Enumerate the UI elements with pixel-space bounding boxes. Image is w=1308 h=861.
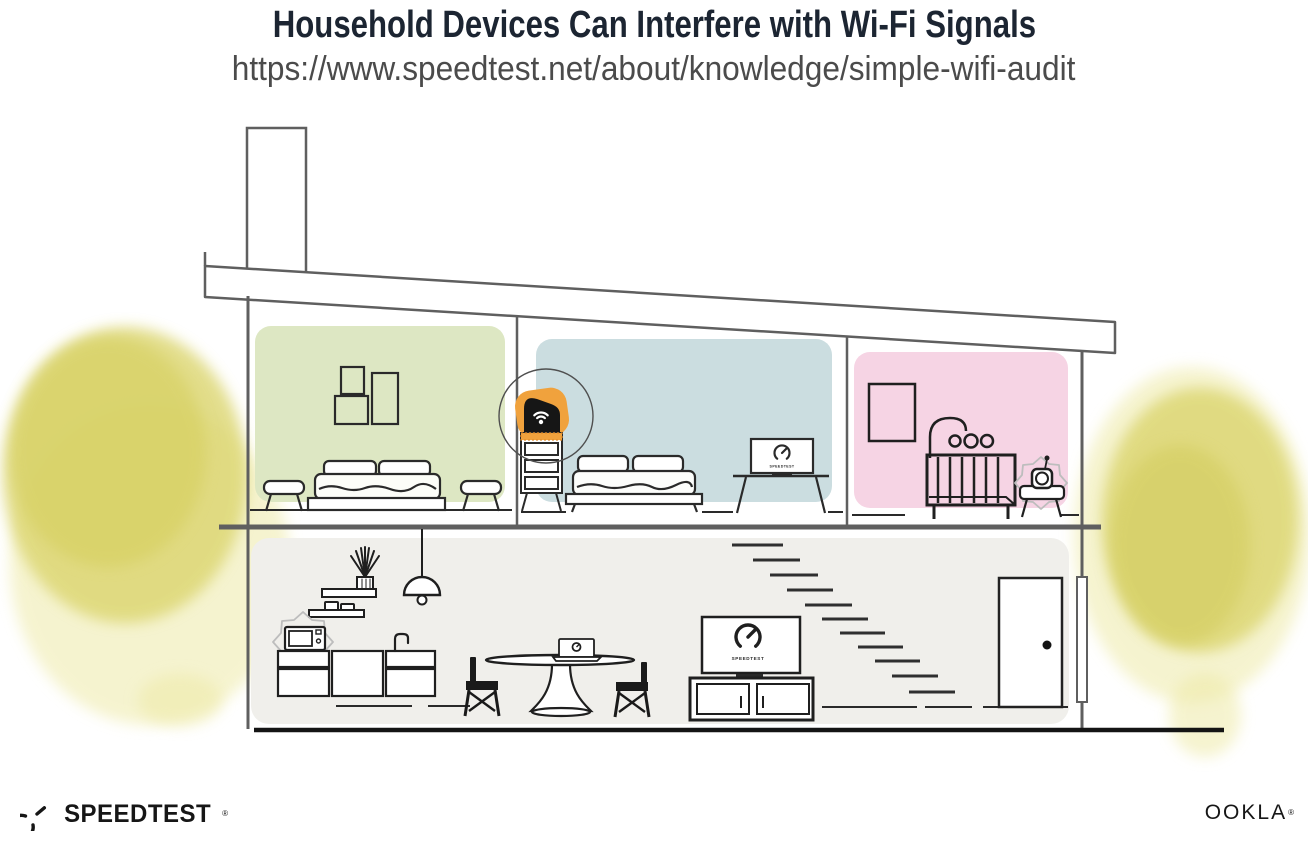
registered-mark: ® [1288, 808, 1296, 818]
bed [308, 461, 445, 510]
chimney [247, 128, 306, 280]
speedtest-gauge-icon [20, 797, 54, 831]
door-knob [1043, 641, 1052, 650]
speedtest-logo: SPEEDTEST ® [20, 797, 228, 831]
house-cutaway-illustration: SPEEDTEST [0, 0, 1308, 861]
speedtest-wordmark: SPEEDTEST [64, 800, 211, 829]
tv-with-speedtest: SPEEDTEST [702, 617, 800, 678]
ookla-logo: OOKLA ® [1205, 801, 1296, 825]
bed [566, 456, 702, 512]
registered-mark: ® [222, 809, 228, 819]
microwave [285, 627, 325, 650]
tv-screen-label: SPEEDTEST [732, 656, 765, 661]
downspout [1077, 577, 1087, 702]
desk-monitor-label: SPEEDTEST [770, 465, 795, 469]
front-door [999, 578, 1062, 707]
foliage-right [1074, 367, 1308, 757]
kitchen-cabinets [278, 651, 435, 696]
laptop [553, 639, 601, 661]
ookla-wordmark: OOKLA [1205, 801, 1287, 825]
desk-monitor: SPEEDTEST [751, 439, 813, 476]
tv-console [690, 678, 813, 720]
